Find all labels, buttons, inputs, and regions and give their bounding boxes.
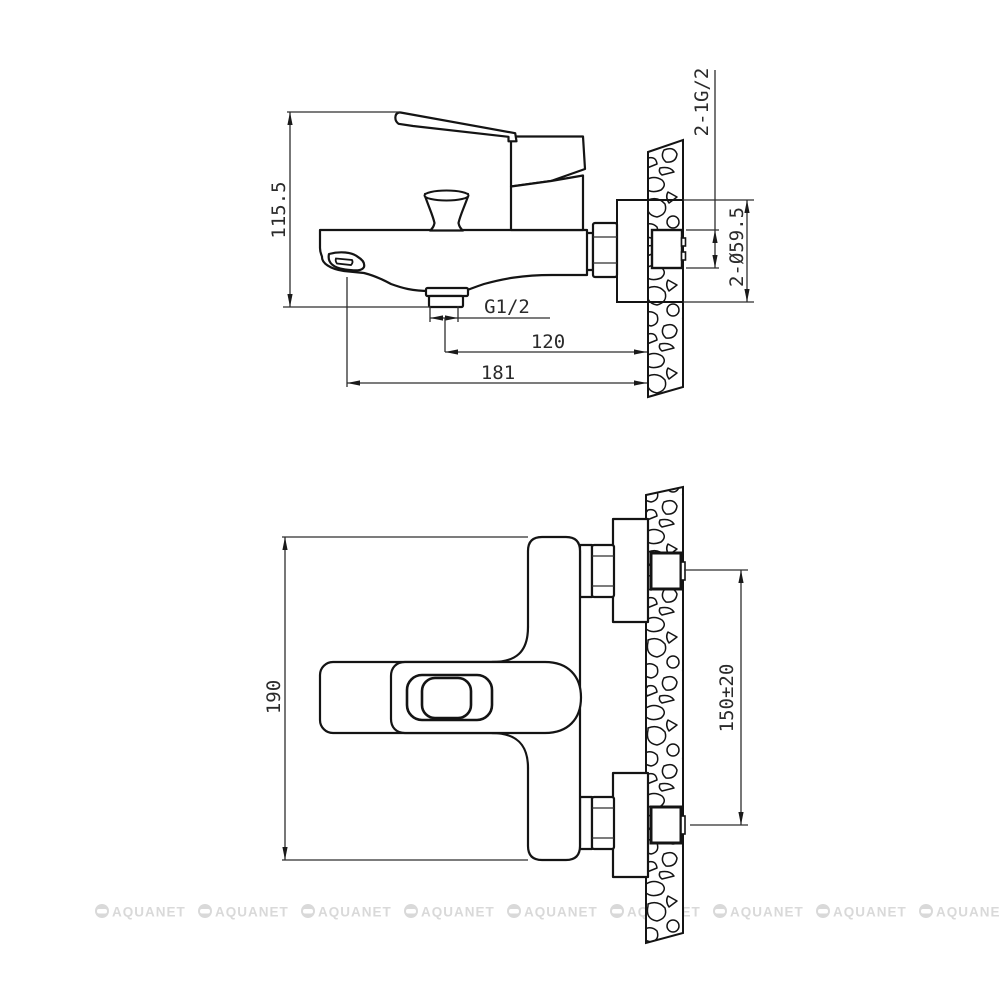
- escutcheon-plate-bottom: [613, 773, 648, 877]
- watermark: AQUANET: [95, 904, 186, 920]
- thread-stub: [682, 252, 686, 260]
- diverter-knob-top: [425, 191, 469, 201]
- thread-stub: [681, 562, 685, 580]
- wall-fitting-top: [651, 553, 681, 589]
- watermark: AQUANET: [919, 904, 1000, 920]
- wall-fitting: [652, 230, 682, 268]
- watermark-label: AQUANET: [936, 905, 1000, 920]
- wall-fitting-bottom: [651, 807, 681, 843]
- watermark: AQUANET: [507, 904, 598, 920]
- hex-nut-top: [592, 545, 614, 597]
- dim-connection-spacing: 150±20: [716, 664, 738, 733]
- side-view: 115.5 G1/2 120 181 2-1G/2 2-Ø59.5: [268, 68, 754, 397]
- thread-stub: [681, 816, 685, 834]
- watermark: AQUANET: [198, 904, 289, 920]
- watermark-label: AQUANET: [318, 905, 392, 920]
- dim-outlet-to-wall: 120: [531, 331, 565, 353]
- front-view: 190 150±20: [263, 487, 748, 943]
- handle-detail-inner: [422, 678, 471, 718]
- escutcheon-plate-top: [613, 519, 648, 622]
- watermark-label: AQUANET: [421, 905, 495, 920]
- dim-wall-thread: 2-1G/2: [691, 68, 713, 137]
- watermark-label: AQUANET: [112, 905, 186, 920]
- connector-collar-bottom: [580, 797, 592, 849]
- technical-drawing-page: AQUANET AQUANET AQUANET AQUANET AQUANET …: [0, 0, 1000, 1000]
- connector-collar-top: [580, 545, 592, 597]
- dim-overall-height: 115.5: [268, 181, 290, 238]
- outlet-flange: [426, 288, 468, 296]
- body-fillet-bottom: [492, 733, 528, 768]
- hex-nut: [593, 223, 617, 277]
- watermark-label: AQUANET: [524, 905, 598, 920]
- watermark-label: AQUANET: [730, 905, 804, 920]
- dim-outlet-thread: G1/2: [484, 296, 530, 318]
- watermark: AQUANET: [713, 904, 804, 920]
- watermark: AQUANET: [816, 904, 907, 920]
- dim-overall-length: 181: [481, 362, 515, 384]
- body-fillet-top: [492, 627, 528, 662]
- watermark: AQUANET: [301, 904, 392, 920]
- outlet-aerator: [429, 296, 463, 307]
- thread-stub: [682, 238, 686, 246]
- handle-lever: [395, 113, 516, 142]
- hex-nut-bottom: [592, 797, 614, 849]
- faucet-technical-drawing: AQUANET AQUANET AQUANET AQUANET AQUANET …: [0, 0, 1000, 1000]
- watermark-label: AQUANET: [833, 905, 907, 920]
- dim-overall-width: 190: [263, 680, 285, 714]
- watermark: AQUANET: [404, 904, 495, 920]
- watermark-label: AQUANET: [215, 905, 289, 920]
- watermark-row: AQUANET AQUANET AQUANET AQUANET AQUANET …: [95, 904, 1000, 920]
- dim-escutcheon-diameter: 2-Ø59.5: [726, 207, 748, 287]
- spout-slot: [336, 259, 353, 266]
